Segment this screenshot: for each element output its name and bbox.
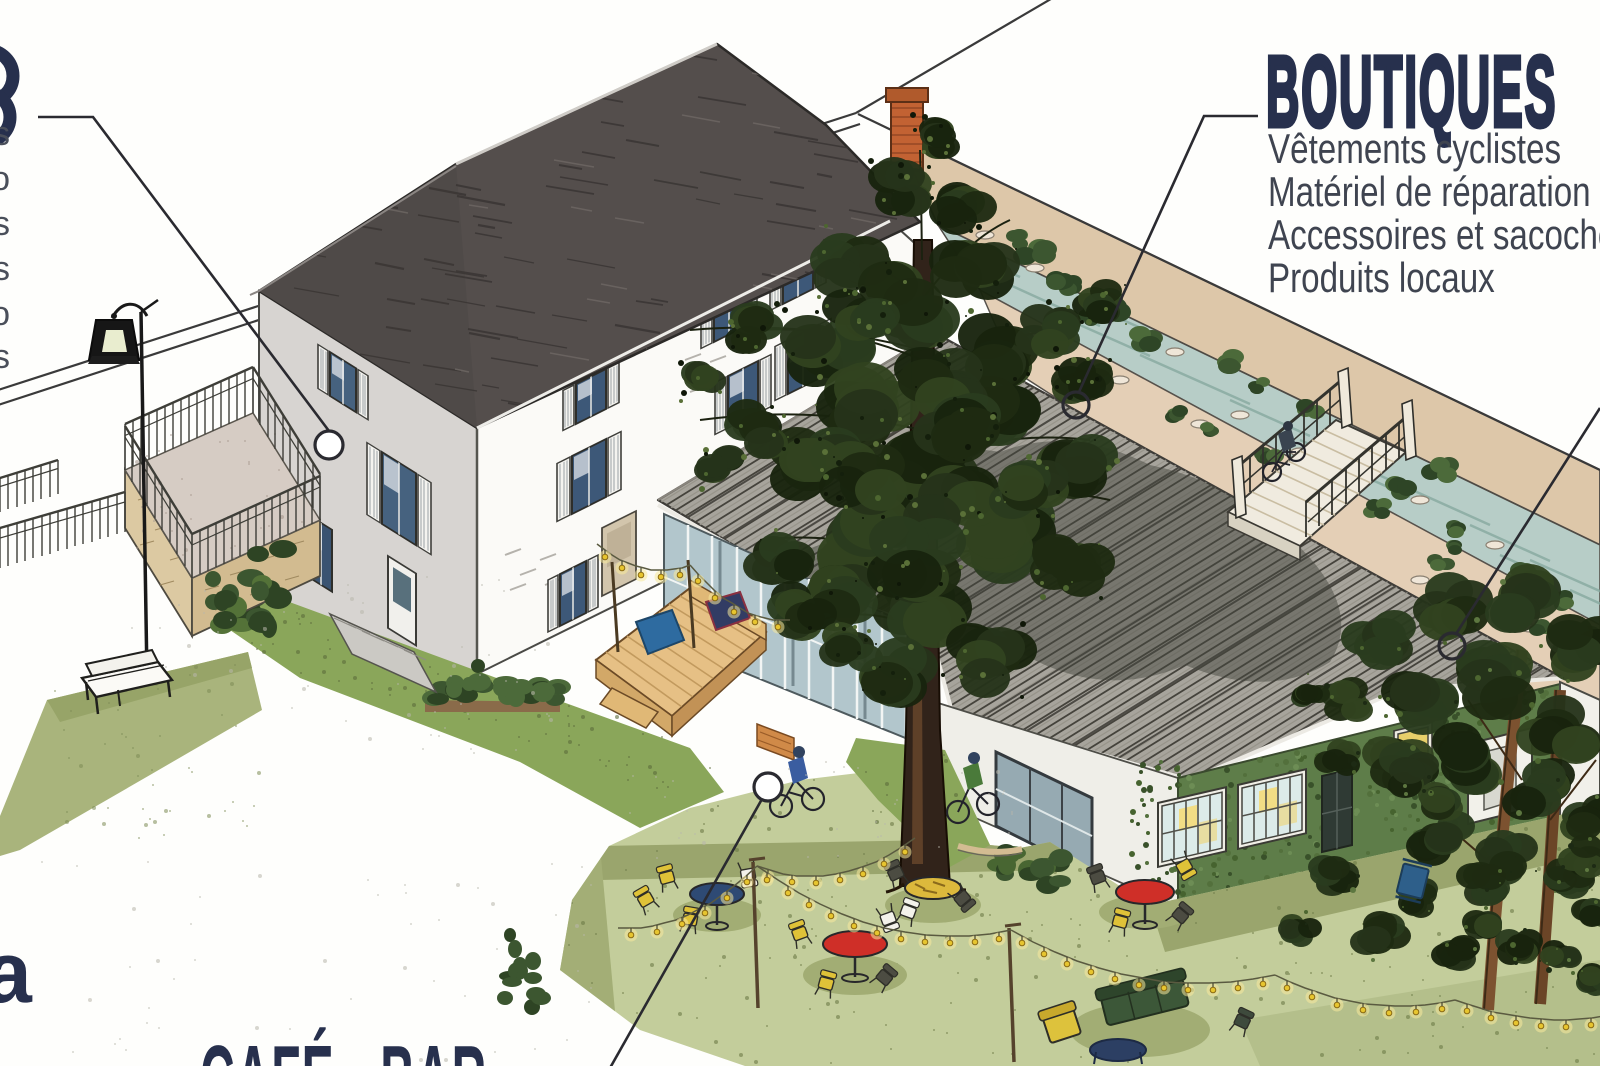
svg-text:s: s: [0, 205, 10, 243]
svg-text:a: a: [0, 925, 33, 1021]
svg-text:Matériel de réparation: Matériel de réparation: [1268, 169, 1591, 216]
svg-text:s: s: [0, 115, 10, 153]
svg-text:Accessoires et sacoches: Accessoires et sacoches: [1268, 212, 1600, 259]
svg-text:CAFÉ - BAR: CAFÉ - BAR: [200, 1026, 487, 1066]
svg-text:s: s: [0, 250, 10, 288]
svg-text:Vêtements cyclistes: Vêtements cyclistes: [1268, 126, 1561, 173]
svg-text:s: s: [0, 338, 10, 376]
svg-text:o: o: [0, 160, 10, 198]
svg-text:Produits locaux: Produits locaux: [1268, 255, 1495, 302]
svg-text:o: o: [0, 295, 10, 333]
